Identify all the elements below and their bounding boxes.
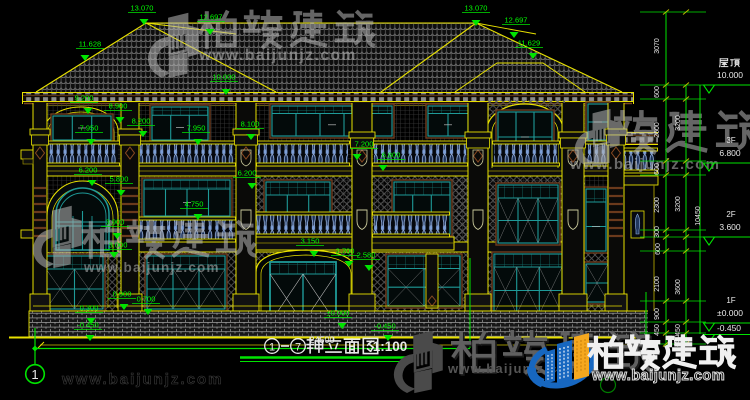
svg-text:2F: 2F xyxy=(726,210,735,219)
svg-text:3200: 3200 xyxy=(675,196,682,212)
svg-text:3.900: 3.900 xyxy=(106,218,125,227)
svg-text:1:100: 1:100 xyxy=(373,339,408,354)
svg-text:0.700: 0.700 xyxy=(137,295,156,304)
svg-text:10.000: 10.000 xyxy=(213,73,236,82)
svg-text:7.950: 7.950 xyxy=(187,124,206,133)
svg-text:3200: 3200 xyxy=(675,115,682,131)
svg-text:±0.000: ±0.000 xyxy=(717,308,743,318)
svg-text:600: 600 xyxy=(654,86,661,98)
svg-text:3F: 3F xyxy=(726,136,735,145)
svg-text:1: 1 xyxy=(31,367,38,382)
svg-text:1F: 1F xyxy=(726,296,735,305)
svg-text:±0.000: ±0.000 xyxy=(327,309,350,318)
svg-text:7.200: 7.200 xyxy=(355,140,374,149)
svg-text:6.800: 6.800 xyxy=(719,148,741,158)
svg-text:13.070: 13.070 xyxy=(465,4,488,13)
svg-text:3070: 3070 xyxy=(654,38,661,54)
svg-text:8.900: 8.900 xyxy=(109,102,128,111)
svg-text:3600: 3600 xyxy=(675,279,682,295)
svg-text:6.200: 6.200 xyxy=(79,166,98,175)
svg-text:300: 300 xyxy=(654,226,661,238)
svg-text:13.070: 13.070 xyxy=(131,4,154,13)
svg-text:2.700: 2.700 xyxy=(336,247,355,256)
svg-text:10450: 10450 xyxy=(695,206,702,226)
svg-text:8.200: 8.200 xyxy=(132,117,151,126)
svg-text:11.628: 11.628 xyxy=(79,40,101,49)
svg-text:7: 7 xyxy=(295,342,301,354)
svg-text:900: 900 xyxy=(654,308,661,320)
svg-text:10.000: 10.000 xyxy=(717,70,743,80)
svg-text:www.baijunjz.com: www.baijunjz.com xyxy=(569,156,720,173)
svg-text:2.580: 2.580 xyxy=(357,251,376,260)
svg-text:6.200: 6.200 xyxy=(238,169,257,178)
svg-text:2600: 2600 xyxy=(654,122,661,138)
svg-text:www.baijunjz.com: www.baijunjz.com xyxy=(591,368,725,384)
svg-text:600: 600 xyxy=(654,163,661,175)
svg-text:9.200: 9.200 xyxy=(75,94,94,103)
svg-text:11.629: 11.629 xyxy=(518,39,540,48)
svg-text:8.100: 8.100 xyxy=(241,120,260,129)
svg-text:0.300: 0.300 xyxy=(80,304,99,313)
svg-text:3.600: 3.600 xyxy=(719,222,741,232)
svg-text:-0.450: -0.450 xyxy=(717,323,741,333)
svg-text:3.000: 3.000 xyxy=(109,241,128,250)
svg-text:450: 450 xyxy=(654,324,661,336)
svg-text:-0.450: -0.450 xyxy=(77,321,98,330)
svg-text:www.baijunjz.com: www.baijunjz.com xyxy=(61,371,223,388)
svg-text:www.baijunjz.com: www.baijunjz.com xyxy=(83,260,220,275)
svg-text:5.800: 5.800 xyxy=(110,175,129,184)
svg-text:6.800: 6.800 xyxy=(382,151,401,160)
svg-text:2100: 2100 xyxy=(654,276,661,292)
svg-text:12.697: 12.697 xyxy=(505,16,528,25)
svg-text:450: 450 xyxy=(675,324,682,336)
svg-text:-0.450: -0.450 xyxy=(374,322,395,331)
svg-text:0.900: 0.900 xyxy=(113,290,132,299)
svg-text:www.baijunjz.com: www.baijunjz.com xyxy=(198,47,357,64)
svg-text:7.950: 7.950 xyxy=(80,124,99,133)
svg-text:600: 600 xyxy=(655,243,662,255)
svg-text:12.697: 12.697 xyxy=(200,13,223,22)
svg-text:3.150: 3.150 xyxy=(301,237,320,246)
svg-text:4.750: 4.750 xyxy=(185,200,204,209)
svg-text:2300: 2300 xyxy=(654,197,661,213)
svg-text:1: 1 xyxy=(269,342,275,354)
